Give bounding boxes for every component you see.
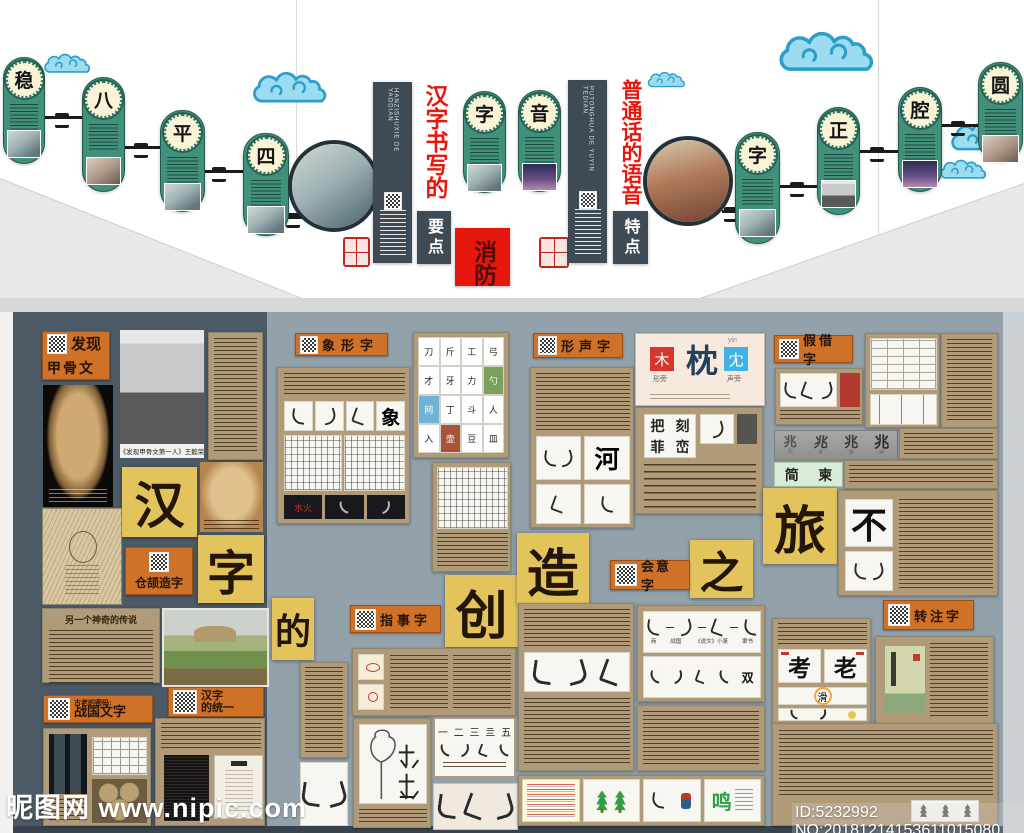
- title-char-de: 的: [272, 598, 314, 660]
- tool-char: 斗: [461, 395, 483, 424]
- tool-char: 力: [461, 366, 483, 395]
- label-text: 象形字: [322, 335, 379, 354]
- subtitle-text: 特点: [619, 218, 643, 258]
- narrow-glyph-panel: [300, 762, 348, 826]
- capsule-zheng: 正: [817, 107, 860, 215]
- portrait-photo: [120, 330, 204, 444]
- zhuanzhu-panel: [875, 636, 994, 724]
- zhao-form: 兆①: [775, 431, 806, 460]
- text-lines: [930, 643, 988, 717]
- text-lines: [167, 157, 197, 183]
- glyph-marks: [498, 744, 509, 756]
- dark-tile: [367, 495, 405, 519]
- glyph-marks: [853, 563, 868, 580]
- label-text: 形声字: [561, 336, 615, 355]
- capsule-char: 四: [256, 142, 275, 169]
- capsule-ping: 平: [160, 110, 205, 212]
- glyph-marks: [709, 618, 726, 637]
- glyph-marks: [321, 407, 338, 425]
- mound-shape: [194, 626, 236, 642]
- shuang-char: 双: [742, 669, 754, 686]
- huiyi-text-panel: [637, 705, 765, 771]
- capsule-char: 字: [475, 100, 494, 127]
- glyph-strip: [780, 373, 837, 407]
- jiaguwen-text-panel: [208, 332, 263, 460]
- glyph-marks: [543, 450, 558, 467]
- flowchart-image: [870, 394, 937, 425]
- capsule-char: 音: [530, 99, 549, 126]
- fire-safety-box: 消防: [455, 228, 510, 286]
- label-text: 战国文字: [74, 706, 126, 719]
- capsule-photo: [821, 180, 857, 208]
- red-seal-stamp: [539, 237, 569, 268]
- caption-lines: [443, 762, 506, 770]
- qr-code: [779, 339, 799, 359]
- ruled-lines: [644, 464, 756, 509]
- text-lines: [778, 623, 867, 645]
- glyph-tile: [315, 401, 344, 431]
- huiyi-panel-left: [518, 603, 634, 771]
- ruled-notes-panel: 把 刻 菲 峦: [635, 407, 763, 514]
- grid-char: 峦: [676, 437, 690, 457]
- design-preview: 稳 八 平 四 HANZISHUXIE DE YAODIAN 汉字书写的 要点 …: [0, 0, 1024, 833]
- capsule-photo: [467, 164, 503, 192]
- tool-char: 弓: [483, 337, 505, 366]
- capsule-char: 稳: [14, 66, 33, 93]
- glyph-marks: [646, 619, 661, 636]
- zhao-char: 兆: [874, 435, 889, 450]
- tool-char: 入: [418, 424, 440, 453]
- number-char: 亖: [485, 724, 495, 739]
- ancient-glyph-grid: [344, 435, 405, 491]
- tools-grid: 刀 斤 工 弓 才 牙 力 勺 网 丁 斗 人 入 壶 豆 皿: [418, 337, 504, 453]
- capsule-zi-center: 字: [463, 91, 506, 193]
- label-text: 假借字: [803, 330, 848, 368]
- label-text: 仓颉造字: [135, 574, 183, 591]
- glyph-marks: [789, 709, 798, 719]
- glyph-row: [435, 745, 514, 756]
- zhishi-panel: [352, 648, 516, 716]
- glyph-columns-image: [437, 467, 508, 529]
- intro-panel-right: PUTONGHUA DE YUYIN TEDIAN: [568, 80, 607, 263]
- rhyme-card: [522, 779, 580, 822]
- xiangxing-panel: 象 水火: [277, 367, 410, 524]
- capsule-photo: [164, 183, 201, 211]
- classroom-photo: [292, 144, 376, 228]
- wall-subtitle-left: 要点: [417, 211, 451, 264]
- section-label-tongyi: 汉字 的统一: [168, 687, 264, 717]
- big-char: 字: [207, 534, 255, 604]
- capsule-photo: [247, 206, 285, 234]
- section-label-cangjie: 仓颉造字: [125, 547, 193, 595]
- qr-code: [300, 336, 318, 354]
- lai-evolution-panel: [775, 368, 863, 425]
- zhao-evolution-strip: 兆① 兆② 兆③ 兆④: [774, 430, 898, 461]
- glyph-marks: [718, 670, 730, 683]
- red-mark: [781, 652, 789, 655]
- qr-code: [149, 552, 169, 572]
- shuang-diagram-strip: 双: [643, 656, 761, 698]
- glyph-marks: [651, 792, 666, 809]
- tool-char: 斤: [440, 337, 462, 366]
- dark-tile-strip: 水火: [284, 495, 405, 519]
- qr-code: [579, 191, 597, 209]
- capsule-photo: [902, 160, 938, 188]
- glyph-marks: [478, 744, 491, 758]
- stage-label: 《说文》小篆: [695, 637, 728, 645]
- wall-subtitle-right: 特点: [613, 211, 648, 264]
- text-lines: [453, 655, 511, 711]
- pictograph-t ools-panel: 刀 斤 工 弓 才 牙 力 勺 网 丁 斗 人 入 壶 豆 皿: [413, 332, 509, 458]
- glyph-marks: [531, 659, 553, 684]
- jiajie-text-panel: [941, 333, 998, 428]
- capsule-char: 平: [173, 119, 192, 146]
- text-lines: [525, 137, 554, 163]
- glyph-sequence: [644, 620, 760, 635]
- intro-panel-left: HANZISHUXIE DE YAODIAN: [373, 82, 412, 263]
- cloud-hook-icon: [790, 182, 804, 197]
- phonetic-box: 冘: [724, 347, 748, 371]
- oracle-columns-panel: [432, 462, 511, 572]
- watermark-site: 昵图网 www.nipic.com: [6, 786, 307, 825]
- stage-number: ③: [849, 450, 854, 456]
- sketch-face: [69, 531, 97, 563]
- glyph-marks: [672, 670, 685, 684]
- jian-text-panel: [844, 460, 998, 489]
- text-lines: [251, 180, 282, 206]
- text-lines: [575, 209, 601, 255]
- capsule-photo: [522, 163, 558, 191]
- red-mark: [856, 652, 864, 655]
- caption-lines: [359, 809, 427, 823]
- section-label-zhuanzhu: 转注字: [883, 600, 974, 630]
- cloud-hook-icon: [134, 143, 148, 158]
- capsule-char: 字: [748, 141, 767, 168]
- ancient-glyph-grid: [284, 435, 342, 491]
- title-char-zi: 字: [198, 535, 264, 603]
- tool-char: 刀: [418, 337, 440, 366]
- dark-thumb: [737, 414, 757, 444]
- capsule-qiang: 腔: [898, 87, 942, 192]
- capsule-medallion: 四: [248, 137, 285, 174]
- text-lines: [524, 609, 630, 647]
- glyph-marks: [558, 449, 575, 467]
- label-text: 转注字: [914, 606, 962, 625]
- ming-card: 鸣: [704, 779, 762, 822]
- qr-code: [47, 334, 67, 354]
- capsule-wen: 稳: [3, 57, 45, 164]
- label-text: 指事字: [380, 610, 431, 629]
- capsule-medallion: 平: [164, 114, 201, 151]
- he-glyph-tile: 河: [584, 436, 630, 480]
- cloud-ornament: [42, 52, 94, 78]
- section-label-jiajie: 假借字: [774, 335, 853, 363]
- capsule-si: 四: [243, 133, 289, 236]
- glyph-tile: 象: [376, 401, 405, 431]
- text-lines: [643, 711, 759, 766]
- label-text: 的统一: [201, 702, 234, 714]
- kao-tile: 考: [778, 649, 821, 683]
- tool-char: 牙: [440, 366, 462, 395]
- ziyin-card: [643, 779, 701, 822]
- glyph-marks: [818, 381, 835, 399]
- tool-char: 勺: [483, 366, 505, 395]
- brush-glyph-photo: [433, 783, 518, 830]
- panel-title-pinyin: HANZISHUXIE DE YAODIAN: [387, 88, 399, 188]
- glyph-tile: [346, 401, 375, 431]
- outdoor-photo: [647, 140, 729, 222]
- diagram-tile: [358, 684, 384, 710]
- dong-char: 柬: [818, 465, 832, 485]
- zhao-char: 兆: [813, 436, 829, 450]
- section-label-zhishi: 指事字: [350, 605, 441, 633]
- big-char: 造: [527, 532, 579, 607]
- big-char: 之: [700, 537, 744, 601]
- caption-lines: [780, 410, 860, 422]
- narrow-text-panel: [300, 662, 348, 758]
- capsule-medallion: 稳: [6, 61, 43, 98]
- portrait-caption: 《发现甲骨文第一人》王懿荣: [120, 444, 204, 458]
- label-text: 发现: [71, 333, 101, 354]
- text-lines: [10, 104, 38, 130]
- zhao-text-panel: [899, 428, 998, 459]
- glyph-marks: [439, 744, 450, 756]
- capsule-photo: [86, 157, 122, 185]
- zhao-form: 兆②: [806, 431, 837, 460]
- wall-title-left: 汉字书写的: [417, 84, 451, 206]
- label-text: 会意字: [641, 556, 685, 594]
- lao-char: 老: [834, 649, 857, 683]
- text-lines: [779, 730, 993, 796]
- capsule-ba: 八: [82, 77, 125, 192]
- grid-char: 把: [651, 416, 665, 436]
- oracle-bone-photo: [43, 385, 113, 507]
- text-lines: [985, 109, 1015, 135]
- capsule-medallion: 字: [466, 95, 503, 132]
- script-table: [92, 737, 147, 775]
- glyph-marks: [463, 792, 489, 820]
- stage-number: ④: [879, 450, 884, 456]
- text-lines: [524, 698, 630, 766]
- capsule-photo: [739, 209, 776, 237]
- capsule-medallion: 音: [521, 94, 558, 131]
- glyph-marks: [339, 501, 350, 513]
- text-lines: [161, 723, 261, 751]
- red-seal-stamp: [343, 237, 370, 267]
- capsule-medallion: 腔: [902, 91, 939, 128]
- legend-title: 另一个神奇的传说: [43, 613, 159, 626]
- tool-char: 工: [461, 337, 483, 366]
- glyph-marks: [694, 670, 708, 685]
- text-lines: [905, 134, 934, 160]
- tree-benmo-panel: [353, 718, 431, 828]
- panel-title-pinyin: PUTONGHUA DE YUYIN TEDIAN: [582, 86, 594, 187]
- board-right-strip: [1003, 312, 1024, 833]
- grid-char: 菲: [651, 437, 665, 457]
- cloud-hook-icon: [55, 113, 69, 128]
- big-char: 的: [275, 603, 311, 655]
- glyph-tile: [845, 551, 893, 591]
- cover-title-bar: [891, 652, 896, 686]
- text-lines: [49, 630, 153, 684]
- yellow-dot: [848, 711, 856, 719]
- photo-medallion-right: [643, 136, 733, 226]
- stage-labels: 商 战国 《说文》小篆 隶书: [644, 637, 760, 645]
- jian-dong-box: 简 柬: [774, 462, 843, 487]
- text-lines: [89, 124, 118, 150]
- capsule-char: 圆: [991, 71, 1010, 98]
- glyph-marks: [437, 794, 459, 819]
- text-lines: [305, 667, 343, 753]
- tool-char: 人: [483, 395, 505, 424]
- stage-label: 商: [651, 637, 657, 645]
- qr-code: [888, 604, 910, 626]
- text-lines: [947, 339, 992, 423]
- trees-card: [583, 779, 641, 822]
- tool-char: 壶: [440, 424, 462, 453]
- wall-title-right: 普通话的语音: [616, 79, 646, 219]
- dark-tile: [325, 495, 363, 519]
- compound-char: 枕: [684, 340, 720, 378]
- text-lines: [742, 179, 772, 205]
- caption-lines: [650, 394, 730, 400]
- bird-sketch-tile: [536, 484, 581, 524]
- glyph-marks: [677, 618, 694, 636]
- capsule-medallion: 八: [85, 81, 122, 118]
- title-char-zao: 造: [517, 533, 589, 605]
- qr-code: [48, 698, 70, 720]
- semantic-box: 木: [650, 347, 674, 371]
- title-char-lv: 旅: [763, 488, 837, 564]
- text-lines: [390, 655, 448, 711]
- capsule-yin-center: 音: [518, 90, 561, 192]
- hua-highlight: 滑: [814, 687, 832, 705]
- tree-image: [359, 724, 427, 804]
- semantic-tag: 形旁: [653, 374, 667, 384]
- kaolao-panel: 考 老 滑: [772, 618, 871, 724]
- qr-code: [384, 192, 402, 210]
- section-label-jiaguwen: 发现 甲骨文: [42, 331, 110, 380]
- zhao-char: 兆: [844, 436, 858, 450]
- capsule-photo: [7, 130, 42, 158]
- label-text: 甲骨文: [47, 358, 95, 378]
- text-lines: [284, 373, 405, 397]
- cloud-ornament: [748, 32, 908, 78]
- purple-text-lines: [735, 789, 753, 813]
- text-lines: [824, 154, 853, 180]
- glyph-marks: [817, 709, 827, 720]
- cloud-hook-icon: [870, 147, 884, 162]
- kids-cards-strip: 鸣: [518, 775, 765, 826]
- ming-char: 鸣: [712, 786, 732, 815]
- capsule-medallion: 正: [820, 111, 857, 148]
- glyph-marks: [550, 495, 567, 514]
- glyph-marks: [291, 408, 306, 425]
- text-lines: [437, 533, 508, 567]
- photo-medallion-left: [288, 140, 380, 232]
- red-book-thumb: [840, 373, 860, 407]
- kao-char: 考: [788, 649, 811, 683]
- table-image: [870, 338, 937, 390]
- text-lines: [899, 499, 993, 591]
- glyph-marks: [351, 407, 368, 426]
- number-char: 二: [454, 724, 464, 739]
- color-text-lines: [527, 784, 575, 817]
- glyph-marks: [379, 500, 392, 513]
- sun-evolution-panel: 商 战国 《说文》小篆 隶书 双: [637, 605, 765, 702]
- text-lines: [849, 465, 993, 485]
- lao-tile: 老: [824, 649, 867, 683]
- title-char-han: 汉: [122, 467, 197, 537]
- capsule-char: 八: [94, 86, 113, 113]
- photo-caption-lines: [204, 520, 259, 529]
- board-left-strip: [0, 312, 13, 833]
- capsule-medallion: 字: [739, 136, 776, 173]
- capsule-yuan: 圆: [978, 62, 1023, 162]
- number-char: 三: [469, 724, 479, 739]
- hua-strip: 滑: [778, 687, 867, 705]
- board-top-bar: [0, 298, 1024, 313]
- grid-char: 刻: [676, 416, 690, 436]
- subtitle-text: 要点: [422, 218, 446, 258]
- tool-char: 网: [418, 395, 440, 424]
- zhao-form: 兆④: [867, 431, 898, 460]
- field-photo: [162, 608, 269, 687]
- glyph-marks: [709, 420, 726, 438]
- zhen-compose-panel: yin 木 枕 冘 形旁 声旁: [635, 333, 765, 406]
- glyph-marks: [458, 744, 471, 757]
- door-glyph-strip: [524, 652, 630, 692]
- tool-char: 豆: [461, 424, 483, 453]
- jiajie-table-panel: [865, 333, 940, 428]
- cloud-hook-icon: [212, 167, 226, 182]
- zhao-form: 兆③: [836, 431, 867, 460]
- sketch-lines: [65, 565, 99, 595]
- glyph-marks: [650, 670, 662, 683]
- tool-char: 丁: [440, 395, 462, 424]
- text-lines: [214, 338, 257, 454]
- big-char: 创: [455, 574, 507, 649]
- evolution-strip: 商 战国 《说文》小篆 隶书: [643, 611, 761, 653]
- text-lines: [536, 373, 630, 431]
- capsule-medallion: 圆: [982, 66, 1019, 103]
- bu-tile: 不: [845, 499, 893, 547]
- section-label-zhanguo: 古老的密码: 战国文字: [43, 695, 153, 723]
- stage-label: 战国: [670, 637, 681, 645]
- bamboo-slips-photo: [49, 734, 87, 794]
- photo-caption-lines: [49, 489, 107, 503]
- bird-sketch-tile: [584, 484, 630, 524]
- oracle-skull-photo: [200, 462, 263, 532]
- cangjie-portrait: [42, 508, 122, 605]
- text-lines: [904, 433, 993, 455]
- glyph-marks: [869, 562, 886, 580]
- cover-seal: [913, 654, 920, 661]
- zhao-char: 兆: [784, 436, 797, 449]
- elephant-evolution-strip: 象: [284, 401, 405, 431]
- red-mark: [368, 692, 378, 702]
- big-char: 汉: [135, 466, 185, 538]
- section-label-xiangxing: 象形字: [295, 333, 388, 356]
- legend-panel: 另一个神奇的传说: [42, 608, 160, 683]
- qr-code: [173, 690, 197, 714]
- glyph-marks: [565, 658, 590, 685]
- chi-glyph-tile: [536, 436, 581, 480]
- tool-char: 才: [418, 366, 440, 395]
- stage-label: 隶书: [742, 637, 753, 645]
- small-tiles-strip: [778, 708, 867, 721]
- watermark-id: ID:5232992 NO:20181214153611015080: [792, 803, 1024, 833]
